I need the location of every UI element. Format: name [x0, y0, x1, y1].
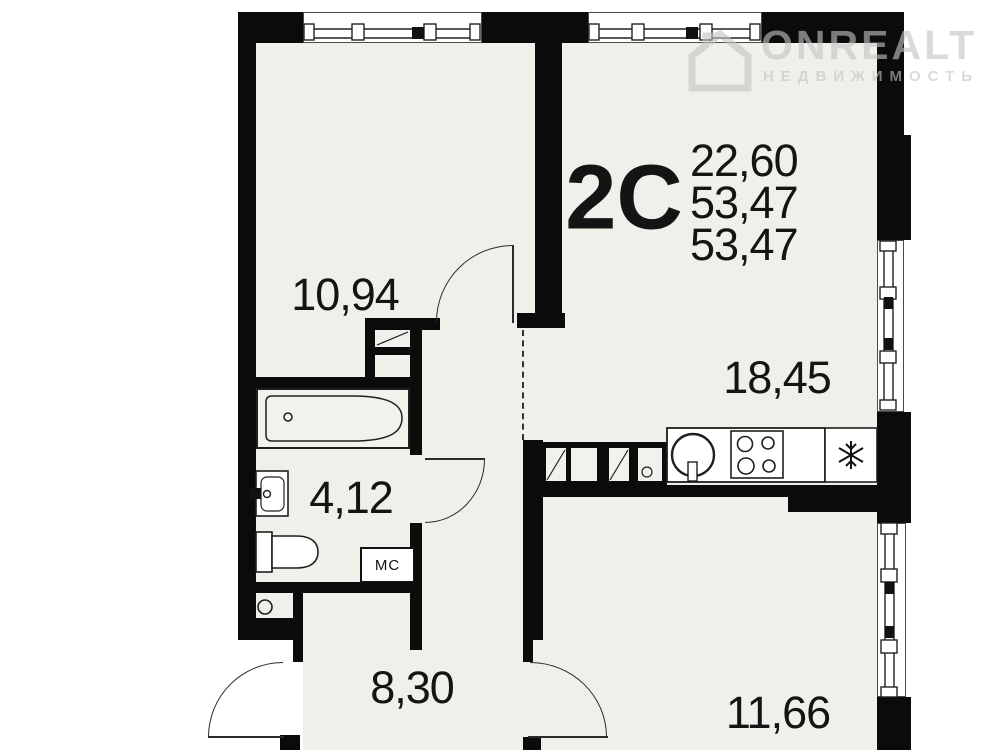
apartment-type-label: 2С [565, 146, 683, 251]
fridge [825, 428, 877, 482]
bedroom-door-leaf [512, 245, 514, 323]
bathroom-door-leaf [425, 458, 485, 460]
room-label-bedroom: 10,94 [291, 269, 399, 321]
room-label-hallway: 8,30 [370, 662, 454, 714]
room-label-kitchen-living: 18,45 [723, 352, 831, 404]
closet [377, 332, 408, 345]
fixtures-layer [0, 0, 1000, 750]
vent-shaft [258, 600, 272, 614]
stove [731, 431, 783, 478]
room-label-bathroom: 4,12 [309, 472, 393, 524]
kitchen-cabinets [540, 442, 667, 487]
floor-plan: 2С 22,60 53,47 53,47 10,94 18,45 4,12 8,… [0, 0, 1000, 750]
washing-machine-box: МС [360, 547, 415, 583]
zone-divider-dashed [522, 330, 524, 440]
area-value-total: 53,47 [690, 224, 798, 266]
room-label-room2: 11,66 [726, 687, 830, 739]
bathroom-sink [249, 471, 288, 516]
toilet [256, 532, 318, 572]
entrance-door-leaf [208, 736, 284, 738]
kitchen-counter [667, 428, 825, 482]
kitchen-tap [688, 462, 697, 481]
bathtub [257, 389, 409, 448]
area-value-room: 22,60 [690, 140, 798, 182]
room2-door-leaf [528, 736, 608, 738]
area-value-living: 53,47 [690, 182, 798, 224]
